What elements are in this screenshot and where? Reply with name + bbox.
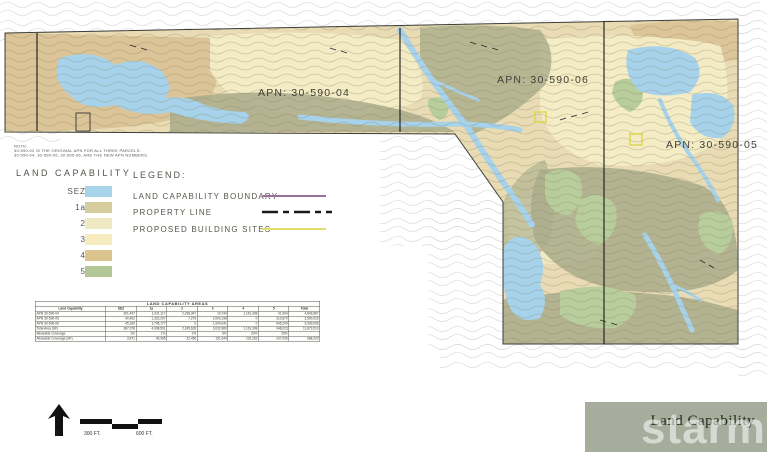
scale-bar: [80, 419, 162, 429]
proposed-building-sites-line-symbol: [262, 227, 326, 231]
capability-key-row-3: 3: [16, 234, 136, 247]
legend-title: LEGEND:: [133, 170, 187, 180]
table-cell: 40,985: [136, 336, 167, 341]
capability-swatch-sez: [85, 186, 112, 197]
table-cell: 232,262: [228, 336, 259, 341]
capability-swatch-4: [85, 250, 112, 261]
capability-key-row-1a: 1a: [16, 202, 136, 215]
capability-key-row-sez: SEZ: [16, 186, 136, 199]
apn-label-06: APN: 30-590-06: [497, 74, 589, 86]
table-cell: 151,649: [197, 336, 228, 341]
apn-label-04: APN: 30-590-04: [258, 87, 350, 99]
capability-label: SEZ: [67, 187, 86, 196]
table-cell: 22,456: [167, 336, 198, 341]
capability-swatch-5: [85, 266, 112, 277]
capability-key-row-2: 2: [16, 218, 136, 231]
scale-label-600: 600 FT.: [136, 431, 153, 437]
note-line: 30-590-04, 30-590-05, 30-590-06, ARE THE…: [14, 153, 244, 158]
scale-label-0: 0: [56, 431, 59, 437]
table-cell: 237,006: [259, 336, 289, 341]
legend-label: PROPERTY LINE: [133, 208, 212, 217]
capability-swatch-3: [85, 234, 112, 245]
capability-key-row-5: 5: [16, 266, 136, 279]
land-capability-areas-table-wrap: LAND CAPABILITY AREAS Land CapabilitySEZ…: [35, 301, 321, 342]
capability-swatch-2: [85, 218, 112, 229]
land-capability-boundary-line-symbol: [262, 194, 326, 198]
table-row: Allowable Coverage (SF)3,87140,98522,456…: [35, 336, 320, 341]
starmls-watermark: starmls: [641, 404, 767, 454]
scale-label-300: 300 FT.: [84, 431, 101, 437]
capability-key-row-4: 4: [16, 250, 136, 263]
capability-key-title: LAND CAPABILITY: [16, 168, 131, 178]
scanned-land-capability-map-page: { "map": { "apn_labels": [ { "text": "AP…: [0, 0, 767, 452]
table-cell: 688,229: [289, 336, 320, 341]
legend-label: LAND CAPABILITY BOUNDARY: [133, 192, 278, 201]
table-body: APN 30-590-04301,4471,031,1172,238,34719…: [35, 311, 320, 341]
table-cell: 3,871: [106, 336, 136, 341]
legend-label: PROPOSED BUILDING SITES: [133, 225, 271, 234]
capability-table: LAND CAPABILITY AREAS Land CapabilitySEZ…: [35, 301, 320, 342]
legend-row-property-line: PROPERTY LINE: [133, 207, 373, 219]
capability-swatch-1a: [85, 202, 112, 213]
property-line-symbol: [262, 210, 332, 214]
note-block: NOTE: 30-590-02 IS THE ORIGINAL APN FOR …: [14, 144, 244, 158]
legend-row-building-sites: PROPOSED BUILDING SITES: [133, 224, 373, 236]
table-row-label: Allowable Coverage (SF): [35, 336, 106, 341]
north-arrow-icon: [48, 404, 70, 436]
legend-row-boundary: LAND CAPABILITY BOUNDARY: [133, 191, 373, 203]
apn-label-05: APN: 30-590-05: [666, 139, 758, 151]
